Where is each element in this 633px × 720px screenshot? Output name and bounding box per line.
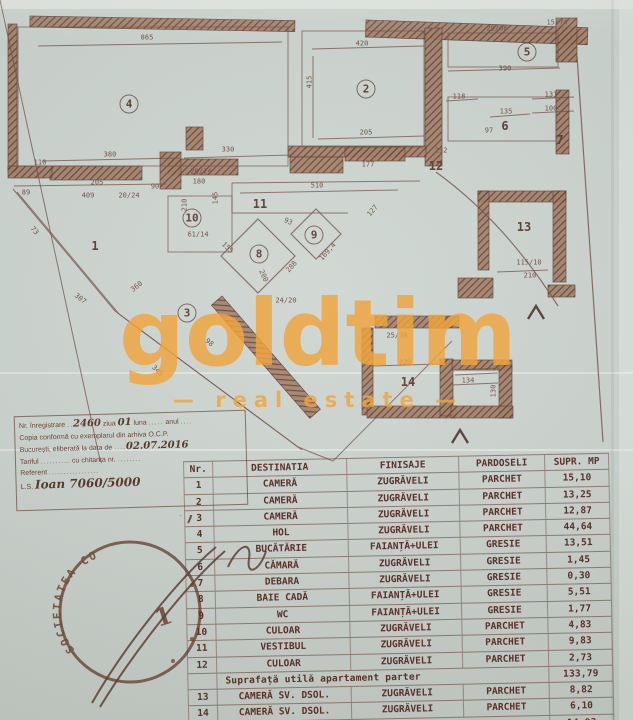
plan-walls — [8, 16, 588, 418]
table-cell: WC — [216, 606, 350, 624]
table-cell: 1,45 — [547, 551, 611, 568]
table-cell: CAMERĂ — [213, 475, 347, 493]
printed-text: Referent — [20, 469, 49, 477]
table-cell: CAMERĂ — [214, 508, 348, 526]
table-cell: CAMERĂ SV. DSOL. — [218, 703, 352, 720]
table-cell: 12 — [187, 657, 217, 673]
table-cell: 1,77 — [548, 600, 612, 617]
room-outline — [168, 196, 232, 252]
plan-line — [232, 181, 420, 183]
wall-segment — [50, 166, 142, 180]
table-cell: HOL — [214, 524, 348, 542]
table-cell: FAIANȚĂ+ULEI — [350, 587, 462, 605]
wall-segment — [556, 90, 569, 154]
table-cell: 1 — [183, 478, 213, 494]
wall-segment — [345, 147, 405, 161]
column-header: SUPR. MP — [545, 454, 609, 471]
table-cell: CĂMARĂ — [215, 557, 349, 575]
printed-text: București, eliberată la data de — [20, 444, 115, 454]
table-cell: 13,25 — [546, 486, 610, 503]
plan-path — [291, 209, 341, 259]
area-table: Nr.DESTINATIAFINISAJEPARDOSELISUPR. MP1C… — [183, 453, 615, 720]
arrow-mark — [528, 306, 544, 319]
column-header: FINISAJE — [347, 457, 459, 475]
column-header: DESTINATIA — [213, 459, 347, 477]
plan-line — [455, 373, 498, 375]
wall-segment — [8, 166, 52, 178]
table-cell: 4 — [184, 527, 214, 543]
table-cell: ZUGRĂVELI — [352, 685, 464, 703]
printed-text: ........ — [117, 455, 141, 463]
wall-segment — [375, 316, 459, 328]
wall-segment — [365, 20, 587, 45]
wall-segment — [458, 278, 493, 298]
wall-segment — [211, 296, 320, 418]
plan-line — [17, 192, 119, 314]
table-cell: CULOAR — [216, 622, 350, 640]
table-cell: 5 — [185, 543, 215, 559]
table-cell: 15,10 — [545, 470, 609, 487]
table-cell: ZUGRĂVELI — [348, 489, 460, 507]
printed-text: .. — [67, 422, 73, 429]
plan-line — [38, 42, 282, 46]
table-cell: DEBARA — [215, 573, 349, 591]
table-cell: PARCHET — [464, 699, 550, 716]
plan-line — [448, 68, 560, 71]
printed-text: ................. — [49, 468, 99, 476]
table-cell — [187, 673, 217, 689]
wall-segment — [362, 328, 373, 415]
printed-text: .... — [114, 444, 126, 451]
plan-line — [497, 270, 548, 272]
table-cell: GRESIE — [461, 569, 547, 586]
table-cell: PARCHET — [459, 471, 545, 488]
table-cell: 7 — [185, 576, 215, 592]
table-cell: ZUGRĂVELI — [351, 652, 463, 670]
subtotal-value: 14,93 — [550, 714, 614, 720]
table-cell: 2 — [184, 494, 214, 510]
plan-room-outlines — [18, 27, 558, 252]
table-cell: ZUGRĂVELI — [348, 522, 460, 540]
table-cell: PARCHET — [460, 520, 546, 537]
plan-line — [184, 155, 292, 158]
plan-line — [318, 136, 424, 139]
table-cell: 44,64 — [546, 519, 610, 536]
column-header: PARDOSELI — [459, 455, 545, 472]
column-header: Nr. — [183, 462, 213, 478]
wall-segment — [548, 285, 575, 297]
wall-segment — [553, 191, 566, 282]
table-cell: GRESIE — [462, 602, 548, 619]
table-cell: 6 — [185, 559, 215, 575]
plan-line — [0, 0, 138, 462]
table-cell: ZUGRĂVELI — [350, 620, 462, 638]
table-cell: ZUGRĂVELI — [347, 473, 459, 491]
svg-text:SOCIETATEA CO: SOCIETATEA CO — [51, 548, 100, 656]
table-cell: ZUGRĂVELI — [349, 554, 461, 572]
printed-text: ziua — [101, 420, 118, 427]
plan-line — [14, 184, 166, 186]
table-cell: 0,30 — [547, 568, 611, 585]
floor-plan-drawing — [0, 0, 633, 462]
plan-line — [312, 46, 424, 49]
scanned-floor-plan-document: 123456789101112131486542029/0615/7439041… — [0, 0, 633, 720]
wall-segment — [478, 191, 489, 270]
printed-text: Nr. înregistrare — [19, 422, 67, 430]
table-cell: FAIANȚĂ+ULEI — [350, 603, 462, 621]
table-cell: 9,83 — [549, 633, 613, 650]
handwritten-entry: 2460 — [73, 418, 101, 430]
table-cell: PARCHET — [462, 618, 548, 635]
table-cell: 8,82 — [550, 682, 614, 699]
plan-line — [42, 158, 180, 161]
table-cell: 3 — [184, 511, 214, 527]
plan-line — [446, 99, 478, 101]
plan-line — [452, 383, 498, 385]
plan-line — [490, 114, 530, 117]
room-outline — [448, 97, 556, 141]
wall-segment — [556, 18, 577, 62]
wall-segment — [186, 127, 203, 150]
table-cell: ZUGRĂVELI — [352, 701, 464, 719]
printed-text: .......... — [41, 457, 71, 465]
table-cell: CULOAR — [217, 655, 351, 673]
table-cell: FAIANȚĂ+ULEI — [349, 538, 461, 556]
handwritten-entry: 01 — [118, 417, 132, 428]
stamp-ring-text: SOCIETATEA CO — [51, 548, 100, 656]
table-cell: CAMERĂ — [214, 492, 348, 510]
plan-path — [577, 56, 603, 442]
table-cell: 4,83 — [548, 617, 612, 634]
table-cell: PARCHET — [463, 651, 549, 668]
table-cell: ZUGRĂVELI — [349, 571, 461, 589]
table-cell: CAMERĂ SV. DSOL. — [218, 687, 352, 705]
printed-text: ..... — [149, 419, 164, 426]
table-cell: GRESIE — [462, 585, 548, 602]
wall-segment — [425, 28, 442, 166]
table-cell: BUCĂTĂRIE — [215, 540, 349, 558]
table-cell: 9 — [186, 608, 216, 624]
subtotal-value: 133,79 — [549, 666, 613, 683]
table-cell: PARCHET — [460, 504, 546, 521]
table-cell: GRESIE — [461, 553, 547, 570]
table-cell: 13 — [188, 690, 218, 706]
table-cell: VESTIBUL — [217, 638, 351, 656]
room-outline — [18, 27, 288, 166]
table-cell: PARCHET — [460, 488, 546, 505]
table-cell: PARCHET — [464, 683, 550, 700]
table-cell: 12,87 — [546, 503, 610, 520]
printed-text: cu chitanța nr. — [70, 456, 118, 464]
wall-segment — [8, 24, 17, 172]
table-cell: 10 — [186, 625, 216, 641]
printed-text: luna — [132, 419, 149, 426]
plan-line — [240, 190, 398, 193]
table-cell: GRESIE — [461, 536, 547, 553]
table-cell: 2,73 — [549, 649, 613, 666]
wall-segment — [290, 157, 343, 173]
table-cell: 11 — [187, 641, 217, 657]
printed-text: anul — [163, 419, 180, 426]
arrow-mark — [452, 430, 468, 443]
printed-text: Tariful — [20, 458, 41, 466]
table-cell: 6,10 — [550, 698, 614, 715]
table-cell: 14 — [188, 706, 218, 720]
wall-segment — [451, 406, 513, 418]
table-cell: BAIE CADĂ — [216, 589, 350, 607]
table-cell: ZUGRĂVELI — [351, 636, 463, 654]
plan-line — [333, 341, 452, 461]
table-cell: ZUGRĂVELI — [348, 506, 460, 524]
wall-segment — [30, 16, 295, 32]
table-cell: 13,51 — [547, 535, 611, 552]
table-cell: PARCHET — [463, 634, 549, 651]
table-cell: 8 — [186, 592, 216, 608]
plan-boundary-lines — [221, 56, 603, 442]
handwritten-entry: 02.07.2016 — [126, 439, 189, 452]
printed-text: .... — [180, 418, 192, 425]
table-cell: 5,51 — [548, 584, 612, 601]
printed-text: L.S. — [21, 483, 36, 490]
